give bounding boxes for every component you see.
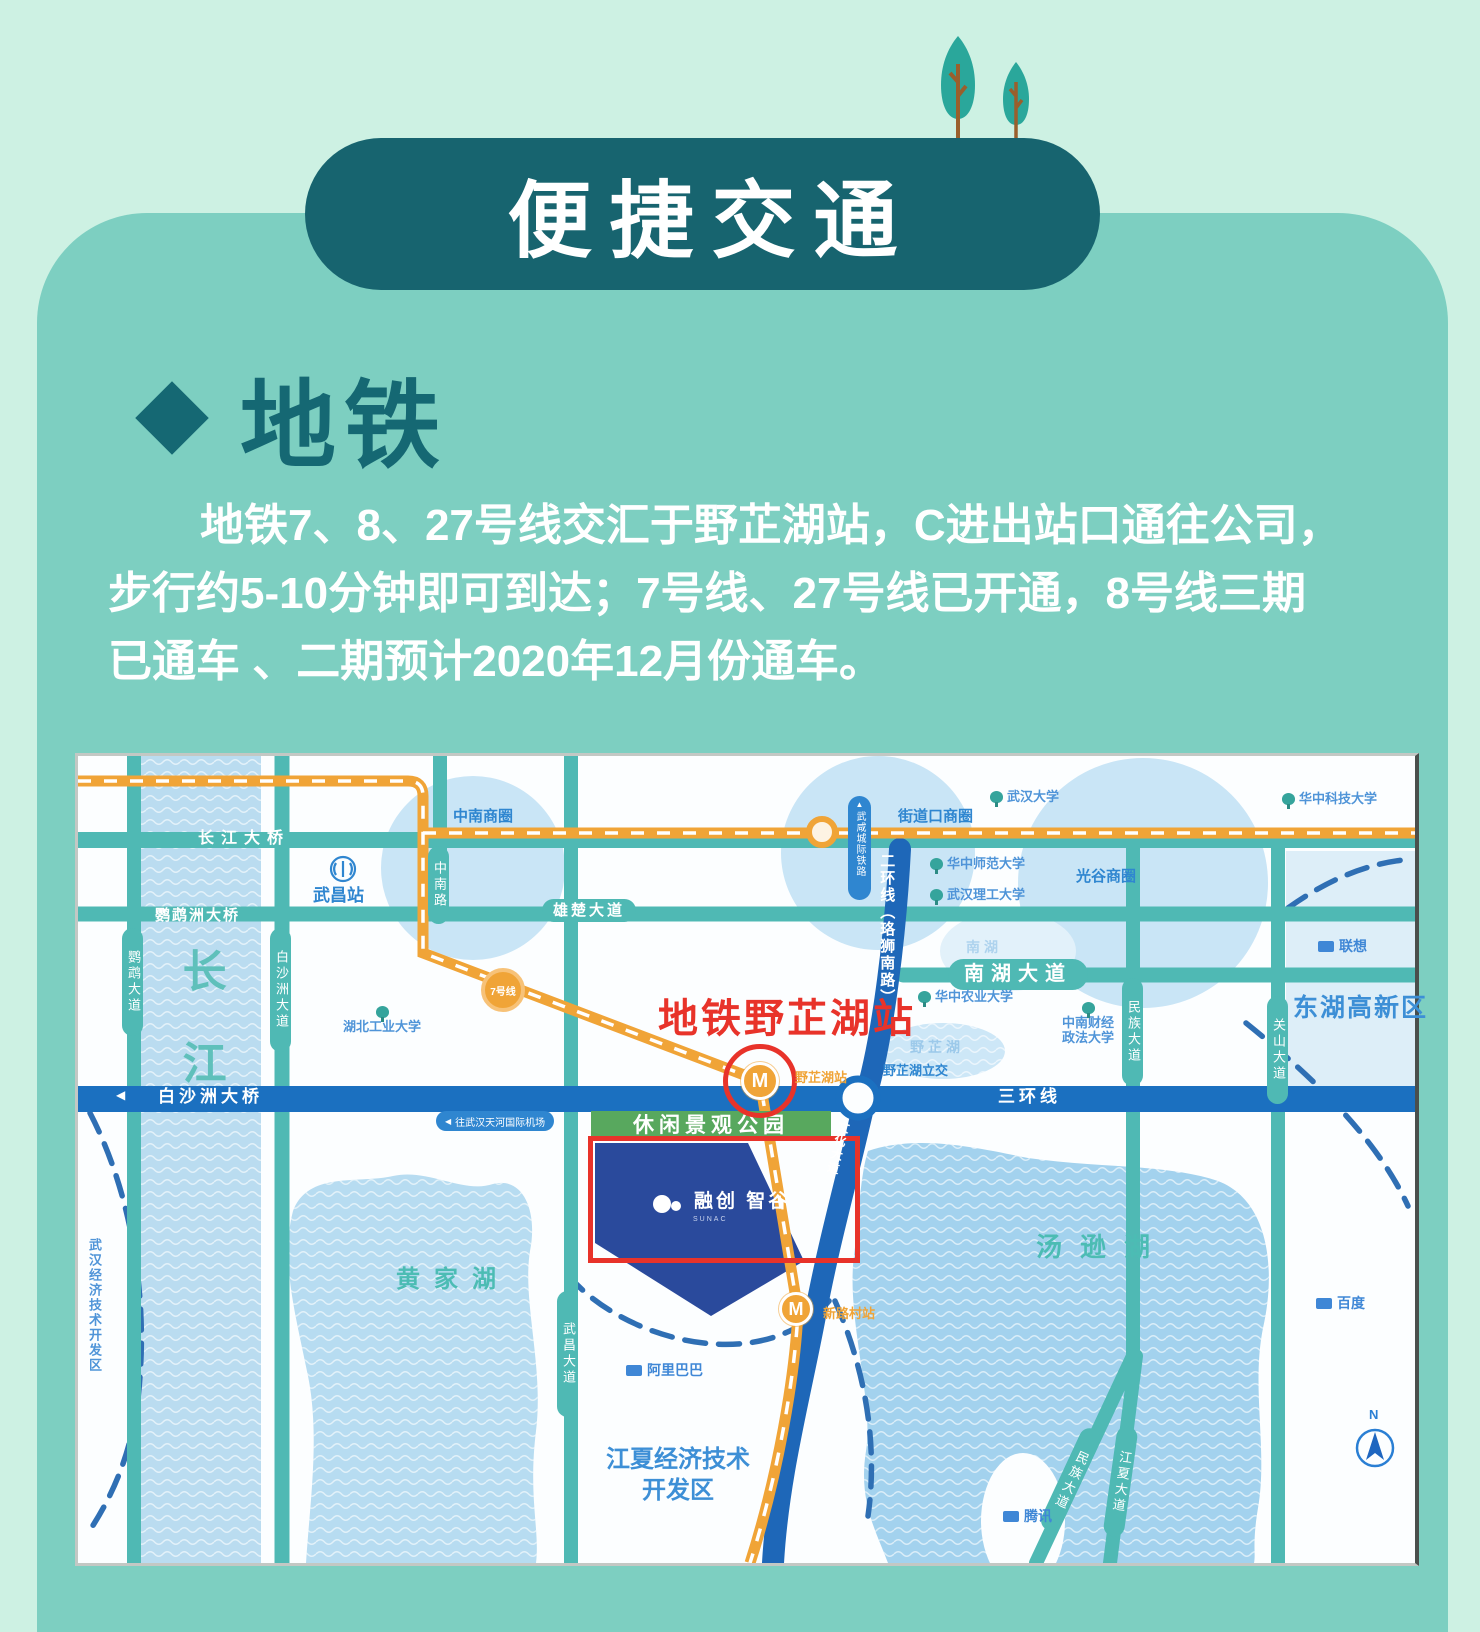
m-letter: M <box>789 1299 804 1320</box>
company-icon <box>1003 1511 1019 1522</box>
lake-label: 南湖 <box>966 939 1002 955</box>
tree-icon <box>918 991 931 1003</box>
section-paragraph: 地铁7、8、27号线交汇于野芷湖站，C进出站口通往公司， 步行约5-10分钟即可… <box>108 492 1398 696</box>
train-icon: ▲ <box>856 801 864 809</box>
university-name: 华中农业大学 <box>935 990 1013 1005</box>
page-title: 便捷交通 <box>489 154 915 275</box>
university-label: 华中科技大学 <box>1282 792 1377 807</box>
university-label: 武汉大学 <box>990 790 1059 805</box>
metro-station-m-icon: M <box>779 1292 813 1326</box>
company-icon <box>626 1365 642 1376</box>
tree-icon <box>1282 793 1295 805</box>
tree-icon <box>376 1006 389 1018</box>
university-label: 华中师范大学 <box>930 857 1025 872</box>
metro-station-ring-icon <box>806 816 838 848</box>
university-label: 华中农业大学 <box>918 990 1013 1005</box>
interchange-label: 野芷湖立交 <box>883 1064 948 1079</box>
area-label: 街道口商圈 <box>898 808 973 825</box>
road-label: 关山大道 <box>1267 996 1288 1104</box>
line7-badge-label: 7号线 <box>490 983 516 998</box>
road-label: 二环线（珞狮南路） <box>878 853 895 1006</box>
tree-icon <box>990 791 1003 803</box>
leisure-park-bar: 休闲景观公园 <box>591 1111 831 1136</box>
line7-badge: 7号线 <box>481 968 525 1012</box>
paragraph-line: 地铁7、8、27号线交汇于野芷湖站，C进出站口通往公司， <box>108 492 1398 560</box>
area-label: 光谷商圈 <box>1076 868 1136 885</box>
m-letter: M <box>752 1070 769 1093</box>
station-label: 野芷湖站 <box>795 1071 847 1086</box>
rail-capsule: ▲ 武咸城际铁路 <box>848 796 871 900</box>
tree-icon <box>1082 1002 1095 1014</box>
road-label: 长江大桥 <box>198 830 290 848</box>
road-label: 中南路 <box>428 846 449 924</box>
bridge-arrow-icon: ◀ <box>116 1089 125 1103</box>
transit-map: 休闲景观公园 融创 智谷 SUNAC M M 7号线 ▲ 武咸城际铁路 ◀ 往武… <box>75 753 1419 1566</box>
compass-icon <box>1357 1430 1393 1466</box>
area-label: 东湖高新区 <box>1293 994 1428 1023</box>
university-label: 武汉理工大学 <box>930 888 1025 903</box>
university-name: 武汉大学 <box>1007 790 1059 805</box>
company-name: 腾讯 <box>1024 1508 1052 1524</box>
sunac-logo-icon <box>651 1192 685 1218</box>
sunac-logo-subtext: SUNAC <box>693 1216 790 1223</box>
university-name: 华中科技大学 <box>1299 792 1377 807</box>
tree-icon <box>930 858 943 870</box>
road-label: 雄楚大道 <box>542 899 636 922</box>
banner: 便捷交通 <box>305 138 1100 290</box>
paragraph-line: 步行约5-10分钟即可到达；7号线、27号线已开通，8号线三期 <box>108 560 1398 628</box>
university-name: 华中师范大学 <box>947 857 1025 872</box>
road-label: 南湖大道 <box>948 959 1088 990</box>
metro-station-callout: 地铁野芷湖站 <box>658 996 916 1042</box>
airport-direction-pill: ◀ 往武汉天河国际机场 <box>436 1111 554 1131</box>
company-label: 阿里巴巴 <box>626 1362 703 1378</box>
station-label: 新路村站 <box>823 1307 875 1322</box>
area-label: 武汉经济技术开发区 <box>86 1238 101 1373</box>
road-label: 鹦鹉大道 <box>122 928 143 1036</box>
left-arrow-icon: ◀ <box>445 1117 451 1126</box>
infographic-page: 便捷交通 地铁 地铁7、8、27号线交汇于野芷湖站，C进出站口通往公司， 步行约… <box>0 0 1480 1632</box>
company-name: 阿里巴巴 <box>647 1362 703 1378</box>
sunac-logo: 融创 智谷 SUNAC <box>651 1186 790 1223</box>
university-label: 湖北工业大学 <box>334 1006 430 1035</box>
area-label: 中南商圈 <box>453 808 513 825</box>
company-icon <box>1316 1298 1332 1309</box>
section-heading: 地铁 <box>240 348 448 487</box>
company-label: 百度 <box>1316 1295 1365 1311</box>
road-label: 武昌大道 <box>557 1291 578 1417</box>
yangtze-river <box>136 756 261 1563</box>
metro-station-m-icon: M <box>741 1062 779 1100</box>
sunac-logo-text: 融创 智谷 <box>693 1186 790 1213</box>
station-label: 武昌站 <box>313 886 364 906</box>
lake-label: 黄家湖 <box>396 1266 510 1294</box>
tree-icon <box>930 889 943 901</box>
wuchang-station-icon <box>331 857 355 881</box>
road-label: 鹦鹉洲大桥 <box>155 907 240 924</box>
trees-decoration <box>928 30 1048 145</box>
road-label: 白沙洲大道 <box>270 928 291 1052</box>
lake-label: 汤逊湖 <box>1036 1233 1168 1263</box>
company-name: 百度 <box>1337 1295 1365 1311</box>
university-name: 湖北工业大学 <box>343 1020 421 1035</box>
paragraph-line: 已通车 、二期预计2020年12月份通车。 <box>108 628 1398 696</box>
rail-capsule-label: 武咸城际铁路 <box>852 811 867 877</box>
university-name: 中南财经 政法大学 <box>1062 1016 1114 1046</box>
river-label: 长江 <box>174 948 225 1132</box>
company-icon <box>1318 941 1334 952</box>
university-label: 中南财经 政法大学 <box>1050 1002 1126 1046</box>
area-label: 江夏经济技术 开发区 <box>583 1444 773 1506</box>
company-label: 腾讯 <box>1003 1508 1052 1524</box>
company-name: 联想 <box>1339 938 1367 954</box>
compass-n-label: N <box>1369 1408 1378 1423</box>
company-label: 联想 <box>1318 938 1367 954</box>
airport-label: 往武汉天河国际机场 <box>455 1114 545 1129</box>
lake-label: 野芷湖 <box>910 1039 964 1055</box>
highway-label: 三环线 <box>998 1087 1061 1107</box>
university-name: 武汉理工大学 <box>947 888 1025 903</box>
